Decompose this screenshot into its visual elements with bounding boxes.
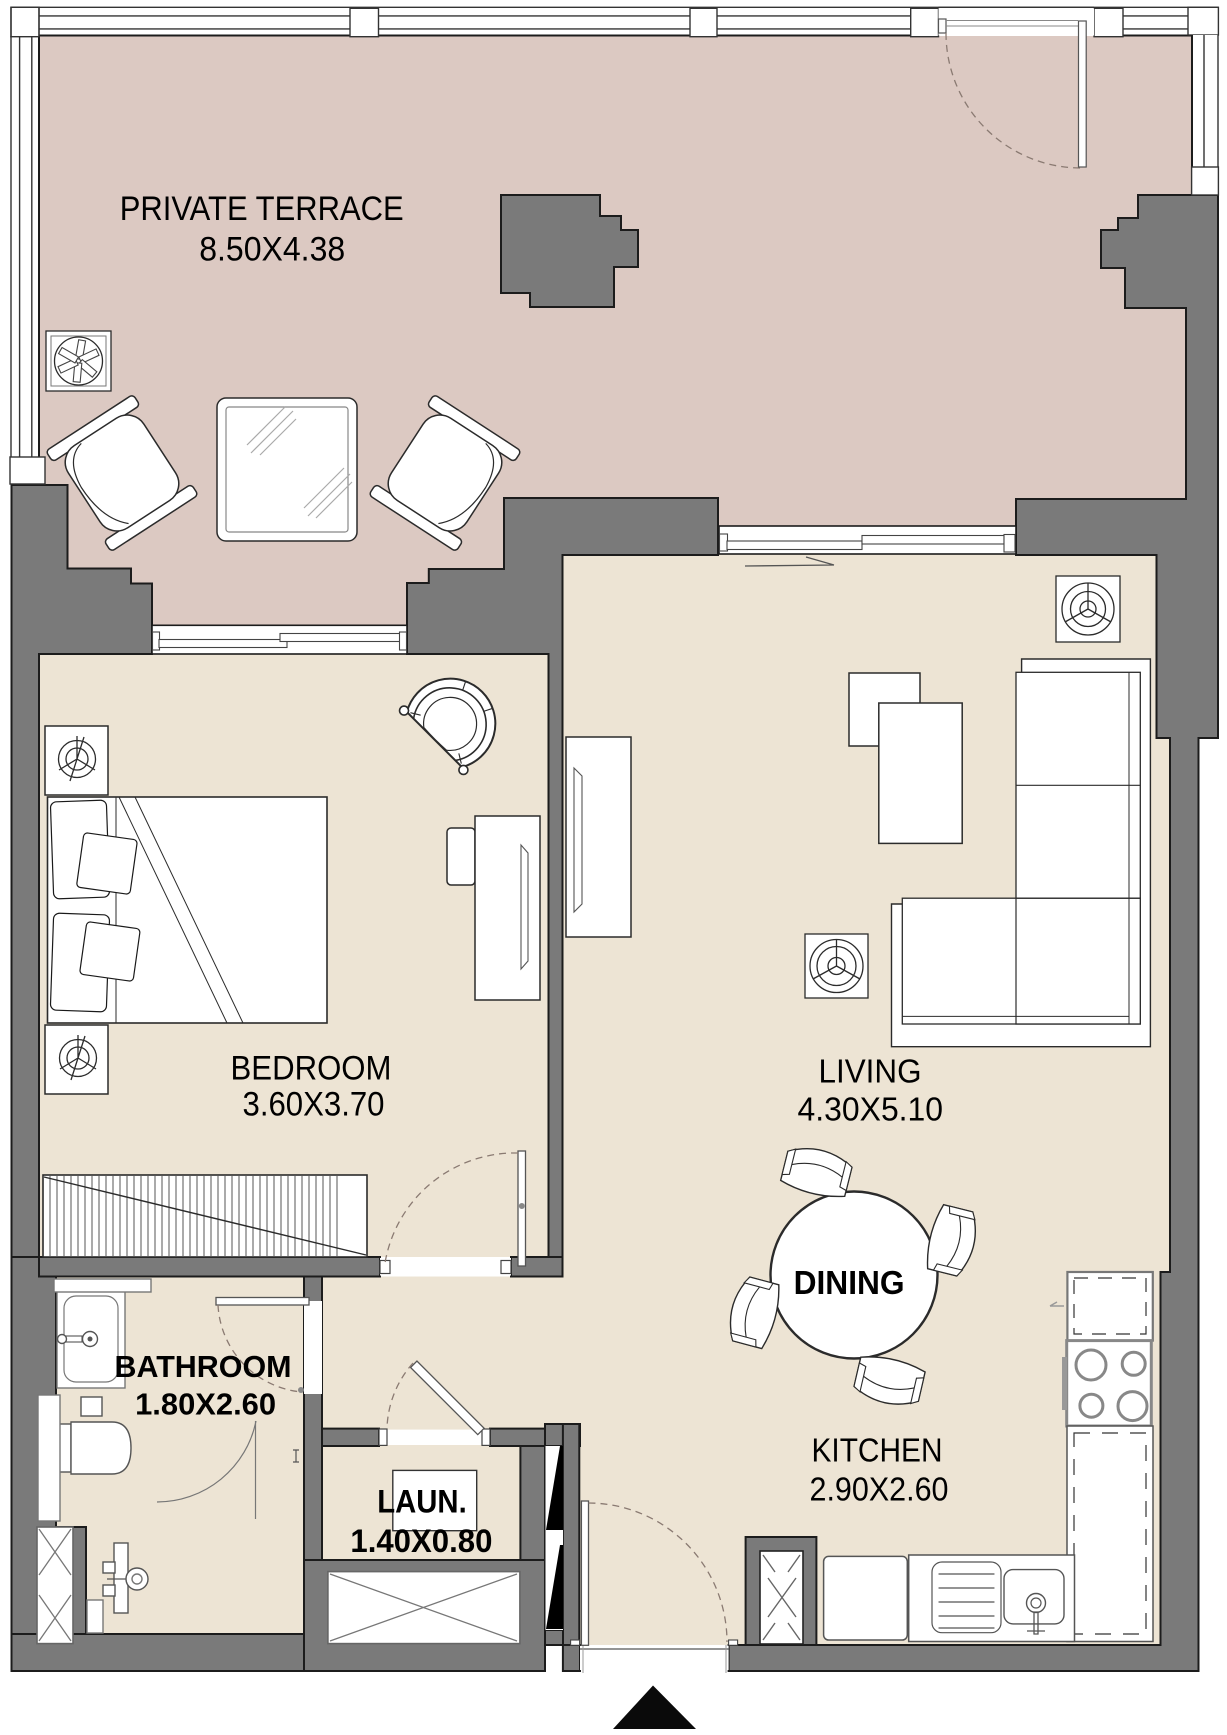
svg-text:4.30X5.10: 4.30X5.10 bbox=[798, 1091, 944, 1128]
svg-text:1.40X0.80: 1.40X0.80 bbox=[350, 1523, 492, 1559]
svg-text:PRIVATE TERRACE: PRIVATE TERRACE bbox=[120, 190, 404, 228]
svg-text:1.80X2.60: 1.80X2.60 bbox=[135, 1386, 276, 1421]
svg-text:8.50X4.38: 8.50X4.38 bbox=[199, 231, 345, 269]
svg-text:KITCHEN: KITCHEN bbox=[812, 1432, 943, 1469]
svg-text:LAUN.: LAUN. bbox=[377, 1484, 466, 1520]
svg-text:3.60X3.70: 3.60X3.70 bbox=[243, 1085, 385, 1123]
svg-text:LIVING: LIVING bbox=[819, 1052, 922, 1089]
svg-text:BEDROOM: BEDROOM bbox=[231, 1049, 392, 1087]
svg-text:BATHROOM: BATHROOM bbox=[115, 1349, 292, 1384]
svg-text:DINING: DINING bbox=[794, 1264, 905, 1301]
svg-text:2.90X2.60: 2.90X2.60 bbox=[810, 1471, 949, 1508]
